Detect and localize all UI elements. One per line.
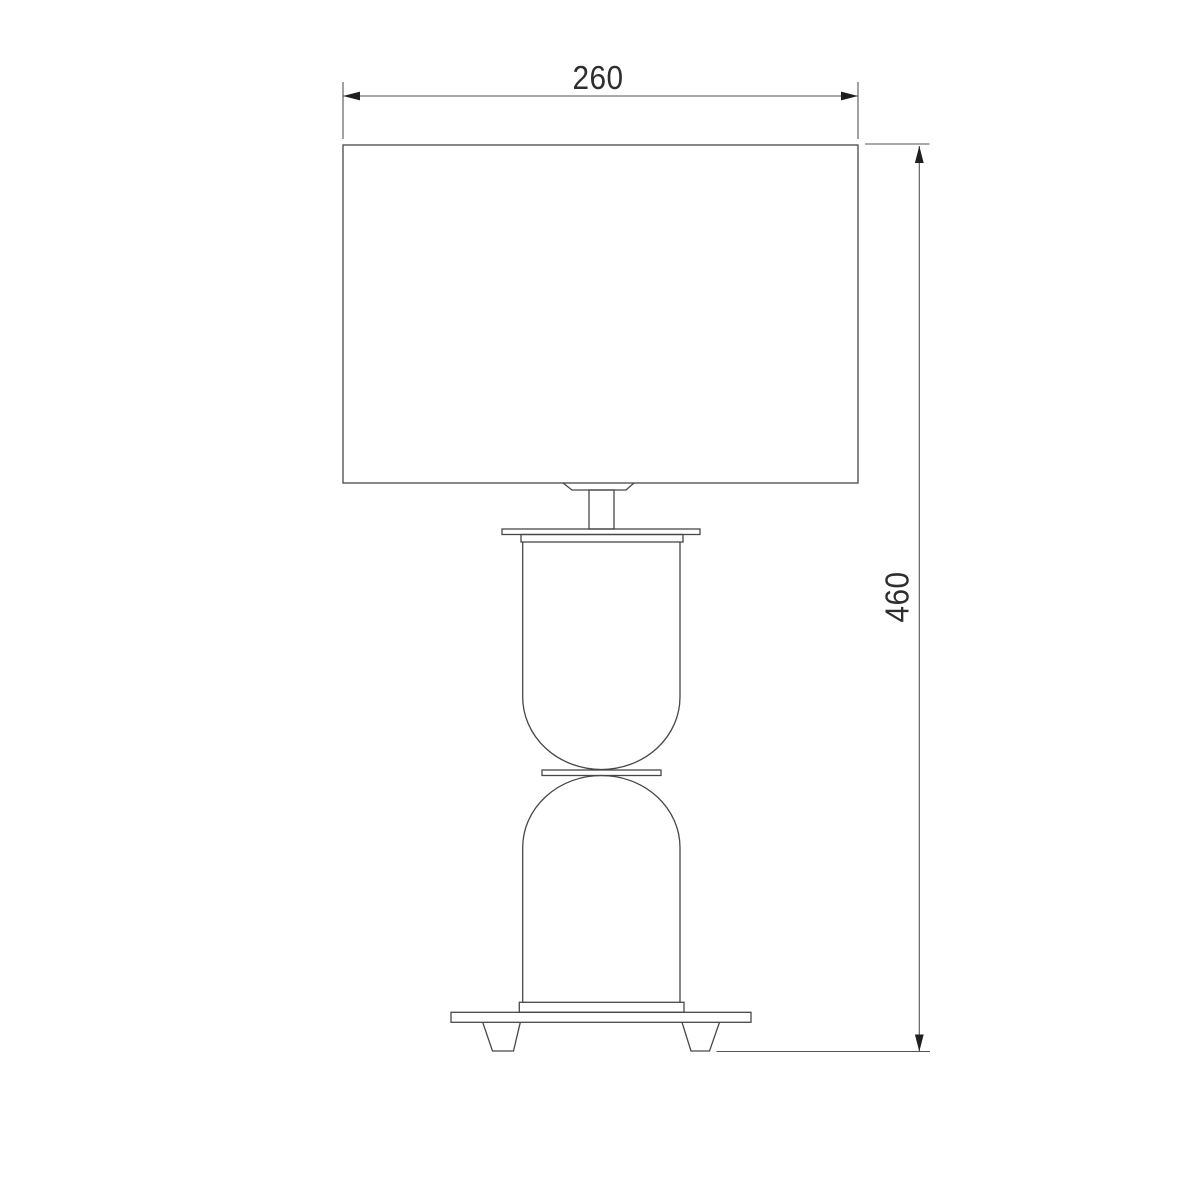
lamp-stem [589, 490, 614, 529]
left-foot [483, 1022, 521, 1051]
height-dimension-label: 460 [879, 572, 916, 623]
lower-body-dome [523, 776, 680, 1003]
shade-support-plate [502, 529, 700, 535]
arrow-up-icon [915, 146, 924, 163]
upper-body-cup [523, 542, 680, 770]
height-dimension: 460 [717, 144, 931, 1052]
width-dimension-label: 260 [573, 59, 624, 96]
arrow-left-icon [343, 92, 360, 101]
lamp-technical-drawing: 260 460 [0, 0, 1200, 1200]
shade-finial-cone [563, 483, 634, 490]
arrow-right-icon [841, 92, 858, 101]
arrow-down-icon [915, 1035, 924, 1052]
middle-disc [542, 770, 661, 776]
drawing-canvas: 260 460 [0, 0, 1200, 1200]
lamp-outline [343, 145, 858, 1051]
lamp-shade [343, 145, 858, 483]
upper-collar [521, 535, 683, 543]
right-foot [682, 1022, 720, 1051]
bottom-collar [519, 1002, 684, 1012]
width-dimension: 260 [343, 59, 858, 139]
base-plate [451, 1012, 751, 1022]
